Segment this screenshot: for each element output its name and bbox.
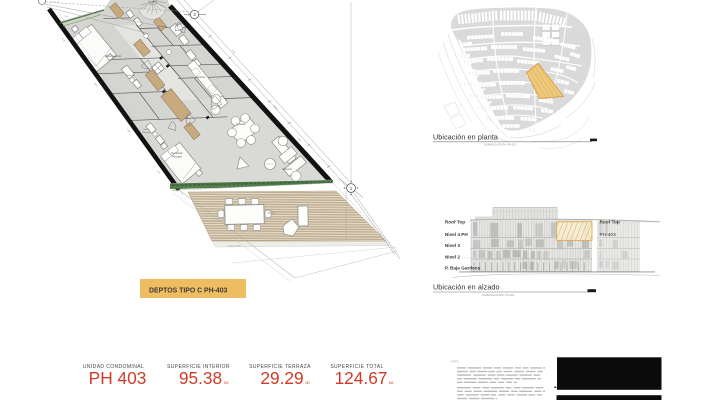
svg-text:Nivel 4 PH: Nivel 4 PH xyxy=(445,232,469,237)
svg-text:Curb. de Vista: Curb. de Vista xyxy=(228,245,242,248)
svg-text:Baño 1A: Baño 1A xyxy=(126,74,134,77)
svg-text:Cocina: Cocina xyxy=(197,76,205,79)
svg-text:Roof Top: Roof Top xyxy=(445,219,465,224)
svg-text:DEPTOS TIPO C PH-403: DEPTOS TIPO C PH-403 xyxy=(149,287,228,294)
svg-text:Ubicación en alzado: Ubicación en alzado xyxy=(433,282,500,291)
svg-text:NOMENCLATURA: PH-403: NOMENCLATURA: PH-403 xyxy=(484,143,516,147)
svg-text:29.29: 29.29 xyxy=(260,368,303,388)
svg-text:Principal: Principal xyxy=(142,132,150,134)
svg-text:Terraza: Terraza xyxy=(267,212,275,215)
svg-text:Roof Top: Roof Top xyxy=(600,219,620,224)
svg-text:124.67: 124.67 xyxy=(335,368,388,388)
svg-text:Principal: Principal xyxy=(172,156,182,159)
svg-text:Comedor: Comedor xyxy=(236,123,246,126)
svg-text:Nivel 2: Nivel 2 xyxy=(445,254,461,259)
svg-text:Nivel 3: Nivel 3 xyxy=(445,243,461,248)
svg-text:NOTA: NOTA xyxy=(451,359,459,363)
svg-text:NOMENCLATURA: PH-403: NOMENCLATURA: PH-403 xyxy=(482,293,514,297)
svg-text:PH-403: PH-403 xyxy=(600,232,617,238)
svg-text:M2: M2 xyxy=(389,381,394,385)
svg-text:P. Baja Gardens: P. Baja Gardens xyxy=(445,265,481,270)
svg-text:95.38: 95.38 xyxy=(179,368,222,388)
svg-text:Recámara 1A: Recámara 1A xyxy=(105,54,121,58)
svg-text:Ubicación en planta: Ubicación en planta xyxy=(433,132,498,141)
svg-text:Estancia: Estancia xyxy=(282,168,292,171)
svg-text:M2: M2 xyxy=(306,381,311,385)
svg-text:PH 403: PH 403 xyxy=(89,368,147,388)
svg-text:M2: M2 xyxy=(224,381,229,385)
svg-text:N.P.T +0.15: N.P.T +0.15 xyxy=(50,2,59,4)
